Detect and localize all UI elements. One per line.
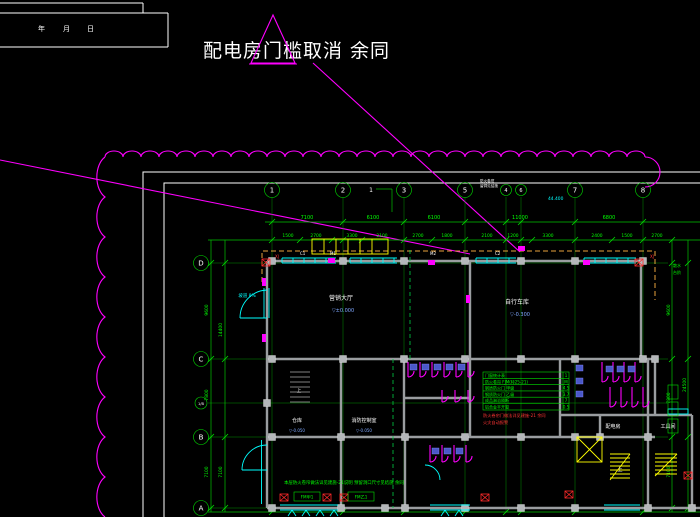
svg-text:散水: 散水 [673,262,681,268]
revision-text: 配电房门槛取消 余同 [203,40,390,62]
dim-text-row1: 7100 6100 6100 11000 6800 [301,215,616,221]
svg-text:2700: 2700 [651,233,662,239]
svg-text:7: 7 [565,398,568,403]
svg-text:2100: 2100 [481,233,492,239]
svg-text:C: C [199,356,204,364]
svg-text:▽-0.050: ▽-0.050 [356,428,372,433]
sheet-frame [143,172,700,517]
svg-text:6: 6 [519,188,522,194]
svg-text:铝合金平开窗: 铝合金平开窗 [485,404,509,410]
svg-text:7100: 7100 [218,466,224,477]
svg-text:7100: 7100 [301,215,314,221]
svg-text:钢质防火门 甲级: 钢质防火门 甲级 [485,385,514,391]
title-block: 年 月 日 [0,3,168,47]
svg-text:7800: 7800 [204,389,210,400]
svg-text:4.5: 4.5 [563,386,570,391]
dim-text-right: 9600 7800 7100 24500 [666,304,688,477]
svg-text:6100: 6100 [428,215,441,221]
svg-text:5: 5 [463,187,467,195]
svg-text:7: 7 [573,187,577,195]
svg-text:消防控制室: 消防控制室 [351,417,376,424]
svg-text:14400: 14400 [218,323,224,337]
center-lines [393,250,410,508]
svg-text:台阶: 台阶 [673,269,681,275]
svg-text:24500: 24500 [682,378,688,392]
svg-text:1: 1 [369,187,373,194]
svg-text:▽-0.300: ▽-0.300 [510,312,530,318]
dim-text-row2: 1500 2700 3300 2100 2700 1800 2100 1200 … [282,233,662,239]
wc-fixtures [408,362,649,462]
svg-text:2700: 2700 [310,233,321,239]
svg-text:7100: 7100 [204,466,210,477]
svg-text:1500: 1500 [621,233,632,239]
svg-text:B: B [199,434,204,442]
title-field-day: 日 [87,25,94,33]
doors [240,246,590,480]
svg-text:1: 1 [270,187,274,195]
revision-annotation: 配电房门槛取消 余同 [0,15,520,254]
svg-text:2100: 2100 [376,233,387,239]
title-field-year: 年 [38,24,45,33]
fire-column-marks: XJ XJ [262,254,692,501]
title-field-month: 月 [63,25,70,33]
svg-text:8: 8 [641,187,645,195]
dimension-lines: 7100 6100 6100 11000 6800 1500 2700 3300… [204,196,700,515]
svg-text:2: 2 [341,187,345,195]
cad-canvas: 年 月 日 配电房门槛取消 余同 7100 6100 6100 11000 [0,0,700,517]
svg-text:2700: 2700 [412,233,423,239]
svg-text:▽±0.000: ▽±0.000 [332,308,354,314]
room-labels: 营销大厅 ▽±0.000 自行车库 ▽-0.300 仓库 ▽-0.050 消防控… [238,292,675,473]
svg-text:7100: 7100 [666,466,672,477]
leader-line-1 [313,63,520,252]
svg-text:配电房: 配电房 [605,423,620,430]
svg-text:上: 上 [297,387,302,394]
svg-text:0.5: 0.5 [563,405,570,410]
svg-text:M2: M2 [430,251,436,256]
svg-text:1500: 1500 [282,233,293,239]
svg-text:防火卷帘 FJM(特25-21): 防火卷帘 FJM(特25-21) [485,378,528,384]
schedule-table: 门窗统计表1 防火卷帘 FJM(特25-21)M 钢质防火门 甲级4.5 钢质防… [483,372,570,426]
canopy-detail [312,239,388,254]
svg-text:▽-0.050: ▽-0.050 [289,428,305,433]
svg-text:M: M [564,379,568,384]
svg-text:3300: 3300 [346,233,357,239]
svg-text:1/B: 1/B [198,402,204,406]
svg-text:成品淋浴隔断: 成品淋浴隔断 [485,397,509,403]
svg-text:营销大厅: 营销大厅 [329,294,353,302]
overall-dim: 44.400 [548,196,564,202]
svg-text:1: 1 [565,373,568,378]
svg-text:A: A [199,505,204,513]
svg-text:C1: C1 [300,251,306,256]
svg-text:防火卷帘: 防火卷帘 [480,178,495,183]
alarm-red-note: 火灾自动报警 [483,419,509,426]
svg-text:9600: 9600 [666,304,672,315]
svg-text:3.7: 3.7 [563,392,570,397]
svg-text:自行车库: 自行车库 [505,298,529,306]
svg-text:FM乙1: FM乙1 [355,494,368,500]
windows [262,258,689,516]
svg-text:FM甲1: FM甲1 [301,495,314,501]
svg-text:3: 3 [402,187,406,195]
svg-text:2400: 2400 [591,233,602,239]
svg-text:D: D [198,260,203,268]
grid-lines [208,197,668,512]
dim-text-left: 9600 7800 7100 14400 7100 [204,304,224,477]
svg-text:3300: 3300 [542,233,553,239]
svg-text:坡道 8%: 坡道 8% [238,292,256,299]
svg-text:6800: 6800 [603,215,616,221]
svg-text:1800: 1800 [441,233,452,239]
svg-text:仓库: 仓库 [292,417,302,424]
svg-text:11000: 11000 [512,215,528,221]
svg-text:C2: C2 [495,251,501,256]
schedule-red-note: 防火卷帘门做法详见建施-21 余同 [483,412,546,419]
svg-text:上: 上 [617,466,622,473]
svg-text:钢质防火门 乙级: 钢质防火门 乙级 [485,391,514,397]
svg-text:留洞见结施: 留洞见结施 [480,183,498,188]
svg-text:XJ: XJ [650,254,654,259]
svg-text:9600: 9600 [204,304,210,315]
svg-text:1200: 1200 [507,233,518,239]
svg-text:4: 4 [504,188,507,194]
door-arc-wc [425,465,440,480]
svg-text:门窗统计表: 门窗统计表 [485,372,505,378]
door-arc-left-2 [242,445,267,470]
revision-cloud [97,151,660,517]
svg-text:本层防火卷帘做法详见建施-21说明 预留洞口尺寸见结施 余同: 本层防火卷帘做法详见建施-21说明 预留洞口尺寸见结施 余同 [284,479,404,486]
svg-text:XJ: XJ [275,254,279,259]
detail-tag: 1 [369,187,392,212]
svg-text:6100: 6100 [367,215,380,221]
svg-text:M1: M1 [330,251,336,256]
